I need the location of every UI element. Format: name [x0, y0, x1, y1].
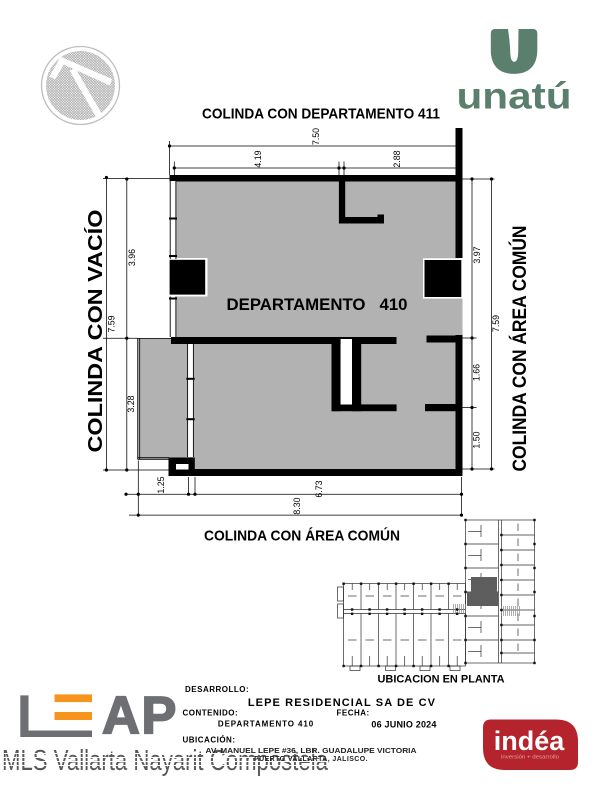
- svg-text:PUERTO VALLARTA, JALISCO.: PUERTO VALLARTA, JALISCO.: [254, 756, 368, 763]
- svg-text:1.25: 1.25: [156, 476, 166, 493]
- svg-text:3.97: 3.97: [472, 246, 482, 263]
- svg-text:6.73: 6.73: [314, 480, 324, 497]
- svg-text:06 JUNIO 2024: 06 JUNIO 2024: [371, 720, 436, 730]
- svg-text:7.59: 7.59: [491, 315, 501, 332]
- svg-text:COLINDA CON VACÍO: COLINDA CON VACÍO: [84, 210, 107, 453]
- svg-text:7.50: 7.50: [311, 128, 321, 145]
- svg-text:DESARROLLO:: DESARROLLO:: [185, 685, 249, 694]
- svg-text:4.19: 4.19: [253, 150, 263, 167]
- svg-text:CONTENIDO:: CONTENIDO:: [183, 709, 239, 718]
- svg-text:3.28: 3.28: [126, 395, 136, 412]
- svg-text:8.30: 8.30: [292, 497, 302, 514]
- svg-text:COLINDA CON ÁREA COMÚN: COLINDA CON ÁREA COMÚN: [204, 527, 400, 545]
- svg-text:1.66: 1.66: [472, 364, 482, 381]
- svg-text:indéa: indéa: [494, 726, 566, 756]
- svg-text:unatú: unatú: [457, 76, 572, 117]
- svg-text:UBICACIÓN:: UBICACIÓN:: [183, 736, 236, 745]
- svg-text:DEPARTAMENTO 410: DEPARTAMENTO 410: [218, 720, 314, 729]
- svg-text:3.96: 3.96: [127, 249, 137, 266]
- svg-text:AV. MANUEL LEPE #36, LBR. GUAD: AV. MANUEL LEPE #36, LBR. GUADALUPE VICT…: [206, 748, 417, 755]
- svg-text:DEPARTAMENTO 410: DEPARTAMENTO 410: [227, 295, 408, 314]
- svg-text:7.59: 7.59: [107, 315, 117, 332]
- svg-text:COLINDA CON ÁREA COMÚN: COLINDA CON ÁREA COMÚN: [509, 226, 531, 472]
- svg-text:COLINDA CON DEPARTAMENTO 411: COLINDA CON DEPARTAMENTO 411: [202, 106, 440, 123]
- svg-text:UBICACION EN PLANTA: UBICACION EN PLANTA: [378, 674, 505, 686]
- svg-text:FECHA:: FECHA:: [337, 709, 370, 718]
- svg-text:LEPE RESIDENCIAL SA DE CV: LEPE RESIDENCIAL SA DE CV: [248, 697, 436, 709]
- svg-text:inversión + desarrollo: inversión + desarrollo: [501, 755, 559, 761]
- svg-text:2.88: 2.88: [392, 150, 402, 167]
- svg-text:AP: AP: [102, 687, 178, 746]
- svg-text:1.50: 1.50: [472, 431, 482, 448]
